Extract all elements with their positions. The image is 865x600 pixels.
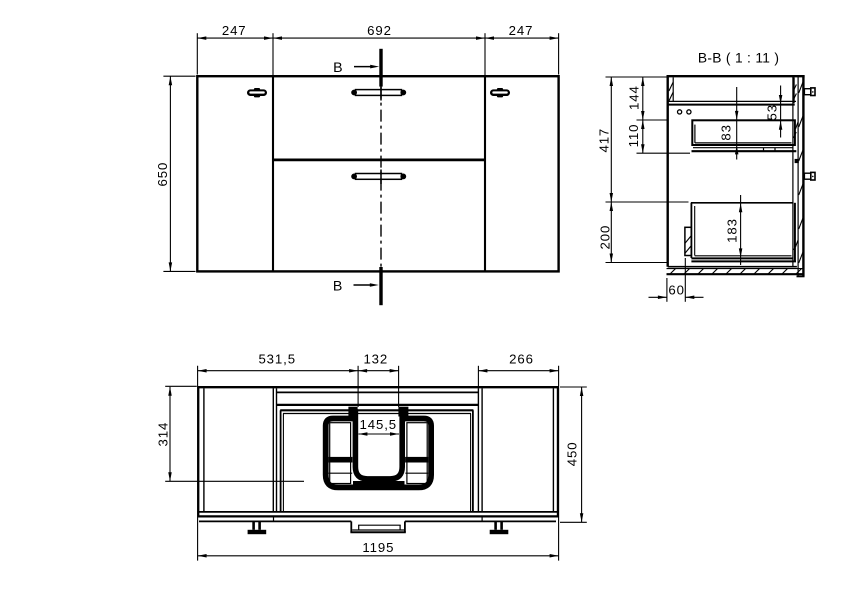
svg-text:417: 417: [596, 128, 611, 153]
svg-text:247: 247: [222, 23, 247, 38]
svg-text:531,5: 531,5: [258, 352, 296, 367]
svg-text:83: 83: [719, 124, 734, 140]
svg-text:B: B: [333, 60, 342, 76]
svg-text:450: 450: [565, 442, 580, 467]
svg-text:145,5: 145,5: [360, 417, 398, 432]
svg-text:60: 60: [668, 283, 684, 298]
svg-text:1195: 1195: [362, 540, 394, 555]
svg-text:B: B: [333, 279, 342, 295]
svg-text:53: 53: [764, 104, 779, 120]
svg-text:200: 200: [598, 225, 613, 250]
svg-text:692: 692: [367, 23, 392, 38]
svg-text:B-B ( 1 : 11 ): B-B ( 1 : 11 ): [698, 50, 779, 65]
svg-text:132: 132: [363, 352, 388, 367]
svg-text:110: 110: [626, 124, 641, 148]
svg-text:247: 247: [509, 23, 534, 38]
svg-text:650: 650: [155, 162, 170, 187]
svg-text:183: 183: [725, 218, 740, 243]
svg-text:144: 144: [626, 85, 641, 110]
svg-text:266: 266: [509, 352, 534, 367]
svg-text:314: 314: [155, 422, 170, 447]
